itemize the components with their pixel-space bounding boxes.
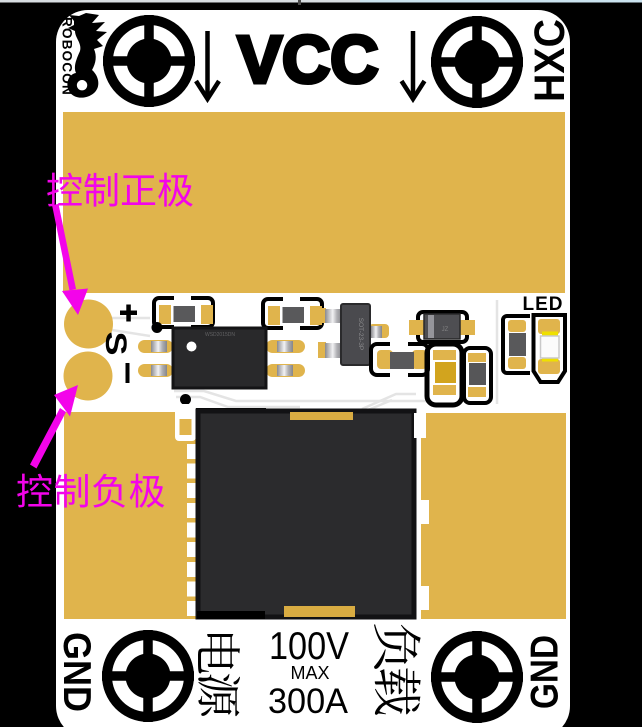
svg-text:HXC: HXC <box>526 19 574 102</box>
svg-text:MAX: MAX <box>291 663 330 683</box>
svg-text:GND: GND <box>55 632 98 712</box>
svg-text:JZ: JZ <box>442 327 449 333</box>
svg-text:300A: 300A <box>268 682 349 721</box>
svg-text:VCC: VCC <box>238 23 379 98</box>
svg-text:LED: LED <box>523 294 564 315</box>
svg-text:S: S <box>99 332 132 356</box>
svg-text:SOT-23-3P: SOT-23-3P <box>357 318 364 351</box>
svg-text:100V: 100V <box>269 625 349 668</box>
svg-text:WSD2015DN: WSD2015DN <box>205 332 235 338</box>
svg-text:GND: GND <box>524 635 567 709</box>
